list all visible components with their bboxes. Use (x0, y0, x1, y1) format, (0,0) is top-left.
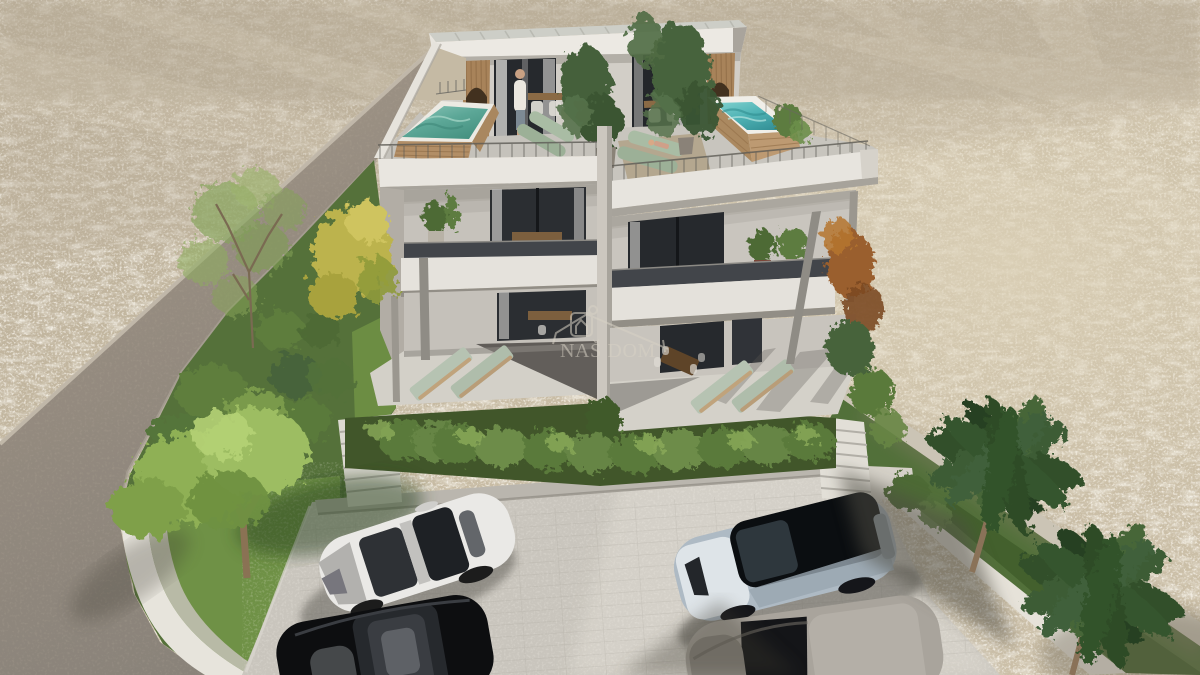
svg-text:NAŠ DOM: NAŠ DOM (560, 338, 656, 362)
